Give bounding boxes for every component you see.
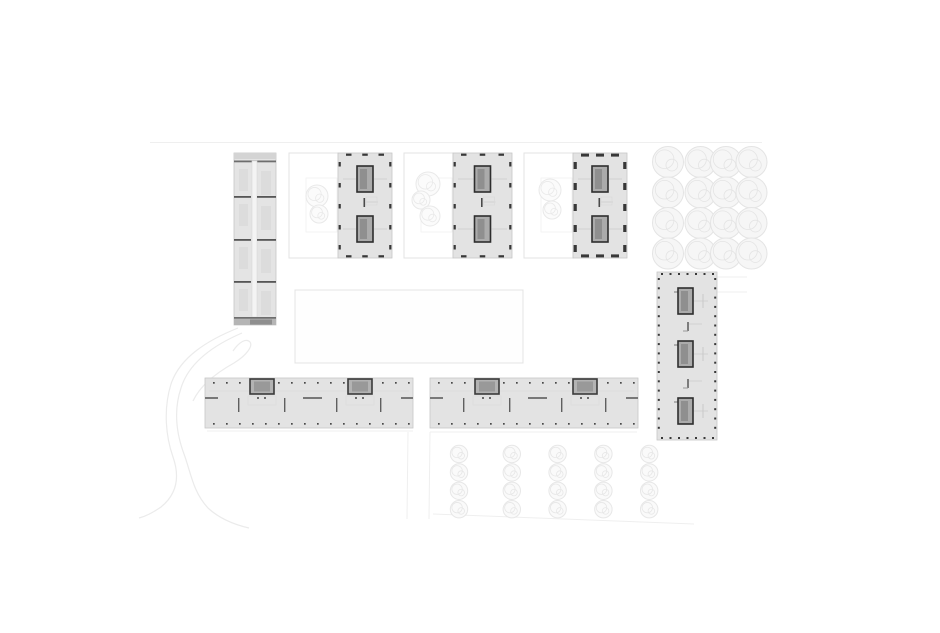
core-dot: [489, 397, 491, 399]
stair-core-shaft: [595, 169, 602, 189]
core-dot: [362, 397, 364, 399]
column-tick: [623, 162, 626, 169]
core-dot: [264, 397, 266, 399]
column-dot: [714, 427, 716, 429]
column-tick: [461, 255, 467, 257]
column-tick: [509, 204, 511, 209]
wall-stub: [284, 398, 285, 412]
column-tick: [389, 162, 391, 167]
column-tick: [509, 225, 511, 230]
landing-wall: [364, 198, 366, 207]
core-dot: [482, 397, 484, 399]
tree: [549, 464, 566, 481]
column-tick: [480, 154, 486, 156]
tree: [306, 185, 328, 207]
stair-core-shaft: [681, 401, 688, 421]
tree: [736, 177, 767, 208]
column-dot: [695, 273, 697, 275]
column-tick: [509, 162, 511, 167]
tree: [653, 208, 684, 239]
column-dot: [568, 382, 570, 384]
tree: [595, 464, 612, 481]
column-tick: [581, 254, 589, 257]
column-dot: [704, 437, 706, 439]
column-tick: [346, 255, 352, 257]
corridor: [252, 161, 257, 317]
column-tick: [362, 255, 368, 257]
column-dot: [395, 423, 397, 425]
tree: [595, 445, 612, 462]
column-dot: [408, 382, 410, 384]
site-line: [429, 432, 430, 519]
tree: [450, 464, 467, 481]
tree: [736, 147, 767, 178]
tree: [653, 147, 684, 178]
column-dot: [503, 382, 505, 384]
column-dot: [542, 382, 544, 384]
column-dot: [226, 382, 228, 384]
site-line: [407, 432, 408, 519]
column-dot: [714, 325, 716, 327]
tree-canopy: [736, 177, 767, 208]
column-dot: [464, 423, 466, 425]
column-dot: [714, 390, 716, 392]
column-dot: [542, 423, 544, 425]
column-dot: [695, 437, 697, 439]
party-wall: [234, 239, 251, 241]
column-dot: [658, 352, 660, 354]
unit-detail: [239, 204, 248, 226]
column-dot: [633, 382, 635, 384]
column-dot: [382, 423, 384, 425]
tree: [420, 206, 440, 226]
column-tick: [574, 162, 577, 169]
wall-dash: [205, 397, 218, 399]
column-dot: [226, 423, 228, 425]
column-tick: [379, 154, 385, 156]
column-dot: [714, 418, 716, 420]
tree: [595, 501, 612, 518]
column-dot: [607, 423, 609, 425]
column-dot: [213, 423, 215, 425]
party-wall: [257, 196, 276, 198]
column-tick: [461, 154, 467, 156]
column-dot: [369, 423, 371, 425]
column-dot: [529, 423, 531, 425]
column-dot: [658, 306, 660, 308]
column-tick: [339, 183, 341, 188]
tree: [736, 238, 767, 269]
tree: [549, 482, 566, 499]
column-tick: [499, 154, 505, 156]
column-dot: [658, 315, 660, 317]
column-dot: [714, 315, 716, 317]
column-dot: [658, 380, 660, 382]
column-dot: [714, 287, 716, 289]
column-dot: [438, 382, 440, 384]
core-dot: [580, 397, 582, 399]
column-dot: [464, 382, 466, 384]
tree: [450, 482, 467, 499]
landing-wall: [481, 198, 483, 207]
slab-building: [234, 153, 276, 325]
unit-detail: [261, 291, 271, 315]
column-tick: [596, 154, 604, 157]
tree: [549, 501, 566, 518]
stair-core-shaft: [681, 291, 688, 311]
column-dot: [516, 382, 518, 384]
roof-strip: [234, 153, 276, 159]
tree: [310, 205, 328, 223]
column-tick: [389, 245, 391, 250]
column-dot: [343, 423, 345, 425]
wall-dash: [303, 397, 322, 399]
column-dot: [658, 325, 660, 327]
tree: [641, 445, 658, 462]
tree: [543, 201, 561, 219]
tree-grove: [653, 147, 768, 270]
tree: [653, 238, 684, 269]
wall-line: [234, 317, 276, 319]
tree: [539, 179, 561, 201]
core-dot: [355, 397, 357, 399]
column-tick: [574, 225, 577, 232]
column-dot: [451, 423, 453, 425]
column-tick: [339, 245, 341, 250]
column-dot: [278, 423, 280, 425]
stair-core-shaft: [360, 169, 367, 189]
column-tick: [480, 255, 486, 257]
column-dot: [661, 273, 663, 275]
wall-stub: [463, 398, 464, 412]
wall-dash: [430, 397, 443, 399]
column-tick: [454, 204, 456, 209]
point-block-building: [338, 153, 392, 258]
stair-core-shaft: [254, 382, 270, 392]
column-dot: [704, 273, 706, 275]
tree: [503, 464, 520, 481]
tree: [450, 501, 467, 518]
lawn-rect: [295, 290, 523, 363]
column-dot: [620, 423, 622, 425]
tree-canopy: [736, 147, 767, 178]
column-dot: [330, 423, 332, 425]
building-outline: [430, 378, 638, 428]
column-dot: [490, 423, 492, 425]
column-tick: [339, 204, 341, 209]
site-plan: [0, 0, 940, 633]
column-dot: [451, 382, 453, 384]
column-tick: [362, 154, 368, 156]
column-dot: [714, 352, 716, 354]
column-dot: [408, 423, 410, 425]
party-wall: [234, 281, 251, 283]
column-dot: [503, 423, 505, 425]
column-dot: [658, 408, 660, 410]
unit-detail: [261, 171, 271, 195]
column-dot: [658, 362, 660, 364]
wall-stub: [336, 398, 337, 412]
column-dot: [658, 343, 660, 345]
column-dot: [658, 297, 660, 299]
unit-detail: [261, 249, 271, 273]
column-tick: [623, 245, 626, 252]
column-tick: [454, 245, 456, 250]
wall-dash: [626, 397, 638, 399]
column-dot: [278, 382, 280, 384]
column-dot: [555, 423, 557, 425]
column-dot: [317, 382, 319, 384]
column-tick: [623, 204, 626, 211]
column-dot: [670, 273, 672, 275]
tree: [503, 482, 520, 499]
tree-canopy: [653, 208, 684, 239]
column-dot: [607, 382, 609, 384]
column-dot: [658, 418, 660, 420]
column-tick: [339, 225, 341, 230]
column-dot: [555, 382, 557, 384]
stair-core-shaft: [479, 382, 495, 392]
column-dot: [438, 423, 440, 425]
tree: [641, 482, 658, 499]
tree-canopy: [653, 147, 684, 178]
wall-stub: [380, 398, 381, 412]
column-tick: [379, 255, 385, 257]
column-tick: [596, 254, 604, 257]
unit-detail: [239, 289, 248, 311]
column-dot: [661, 437, 663, 439]
wall-stub: [561, 398, 562, 412]
tree: [503, 501, 520, 518]
column-tick: [611, 154, 619, 157]
column-tick: [574, 245, 577, 252]
stair-core-shaft: [681, 344, 688, 364]
column-tick: [389, 225, 391, 230]
tree-canopy: [736, 238, 767, 269]
column-dot: [714, 297, 716, 299]
long-slab-building: [430, 378, 638, 428]
column-dot: [714, 399, 716, 401]
wall-dash: [401, 397, 413, 399]
long-slab-building: [205, 378, 413, 428]
column-tick: [339, 162, 341, 167]
column-dot: [714, 362, 716, 364]
tree: [549, 445, 566, 462]
column-dot: [714, 343, 716, 345]
unit-detail: [239, 247, 248, 269]
column-tick: [509, 245, 511, 250]
tower-building: [657, 272, 717, 440]
column-dot: [239, 423, 241, 425]
lawn: [295, 290, 523, 363]
column-tick: [509, 183, 511, 188]
column-tick: [454, 225, 456, 230]
wall-dash: [528, 397, 547, 399]
entry-canopy: [250, 320, 272, 325]
courtyard: [404, 153, 453, 258]
tree: [503, 445, 520, 462]
landing-wall: [599, 198, 601, 207]
core-dot: [257, 397, 259, 399]
unit-detail: [261, 206, 271, 230]
courtyard: [289, 153, 338, 258]
party-wall: [257, 239, 276, 241]
column-tick: [454, 162, 456, 167]
column-dot: [658, 334, 660, 336]
column-dot: [620, 382, 622, 384]
column-tick: [623, 225, 626, 232]
column-dot: [213, 382, 215, 384]
column-tick: [581, 154, 589, 157]
column-tick: [574, 183, 577, 190]
wall-stub: [238, 398, 239, 412]
column-tick: [389, 183, 391, 188]
column-dot: [658, 371, 660, 373]
column-dot: [712, 437, 714, 439]
party-wall: [234, 196, 251, 198]
column-dot: [304, 423, 306, 425]
column-dot: [714, 408, 716, 410]
tree-canopy: [736, 208, 767, 239]
tree: [736, 208, 767, 239]
column-dot: [529, 382, 531, 384]
column-tick: [611, 254, 619, 257]
column-dot: [356, 423, 358, 425]
column-dot: [714, 306, 716, 308]
stair-core-shaft: [478, 219, 485, 239]
stair-core-shaft: [478, 169, 485, 189]
column-tick: [623, 183, 626, 190]
column-dot: [304, 382, 306, 384]
column-dot: [581, 423, 583, 425]
column-dot: [317, 423, 319, 425]
column-dot: [658, 390, 660, 392]
column-dot: [516, 423, 518, 425]
wall-stub: [605, 398, 606, 412]
stair-core-shaft: [352, 382, 368, 392]
column-dot: [252, 423, 254, 425]
tree: [450, 445, 467, 462]
column-tick: [574, 204, 577, 211]
site-plan-svg: [0, 0, 940, 633]
tree-orchard: [450, 445, 658, 518]
column-dot: [658, 427, 660, 429]
building-outline: [205, 378, 413, 428]
tree-canopy: [653, 177, 684, 208]
column-dot: [712, 273, 714, 275]
column-dot: [658, 399, 660, 401]
column-dot: [291, 382, 293, 384]
column-dot: [291, 423, 293, 425]
party-wall: [257, 281, 276, 283]
point-block-building: [453, 153, 512, 258]
column-dot: [714, 380, 716, 382]
column-dot: [687, 437, 689, 439]
column-dot: [678, 273, 680, 275]
column-dot: [658, 278, 660, 280]
column-dot: [714, 371, 716, 373]
column-tick: [499, 255, 505, 257]
column-dot: [678, 437, 680, 439]
column-tick: [454, 183, 456, 188]
tree: [595, 482, 612, 499]
column-tick: [389, 204, 391, 209]
column-dot: [239, 382, 241, 384]
tree: [653, 177, 684, 208]
column-dot: [330, 382, 332, 384]
column-dot: [670, 437, 672, 439]
column-dot: [714, 278, 716, 280]
stair-core-shaft: [595, 219, 602, 239]
stair-core-shaft: [360, 219, 367, 239]
column-dot: [687, 273, 689, 275]
column-dot: [265, 423, 267, 425]
column-dot: [714, 334, 716, 336]
column-dot: [382, 382, 384, 384]
point-block-building: [573, 153, 627, 258]
tree: [641, 501, 658, 518]
courtyard: [524, 153, 573, 258]
tree: [641, 464, 658, 481]
column-dot: [633, 423, 635, 425]
stair-core-shaft: [577, 382, 593, 392]
column-dot: [477, 423, 479, 425]
column-dot: [395, 382, 397, 384]
wall-stub: [509, 398, 510, 412]
column-dot: [343, 382, 345, 384]
column-dot: [658, 287, 660, 289]
unit-detail: [239, 169, 248, 191]
column-dot: [568, 423, 570, 425]
tree-canopy: [653, 238, 684, 269]
column-tick: [346, 154, 352, 156]
core-dot: [587, 397, 589, 399]
column-dot: [594, 423, 596, 425]
